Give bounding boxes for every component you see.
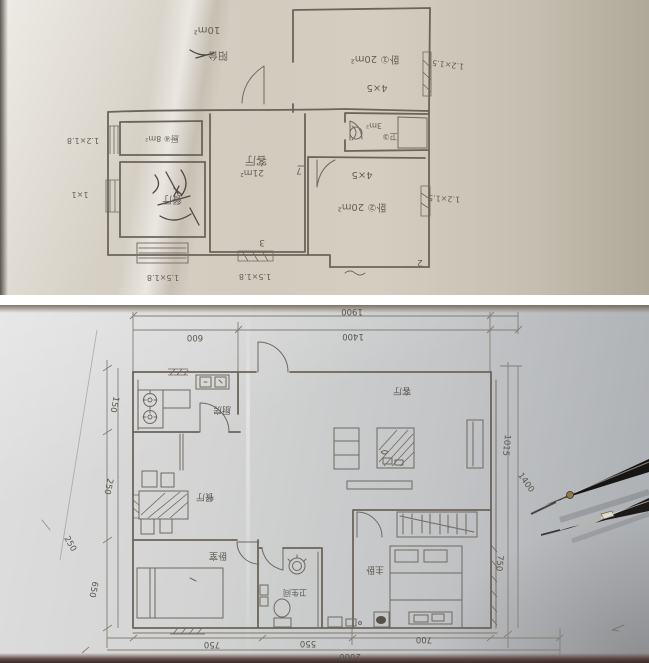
dim-left-3: 250 [61, 534, 78, 553]
dim-right-1: 1015 [500, 434, 512, 456]
dining-label: 餐厅 [162, 193, 182, 206]
dim-left-2: 250 [101, 477, 114, 495]
win-right-mid-label: 1.2×1.5 [428, 193, 461, 204]
dim-top-seg1: 600 [187, 332, 203, 342]
label-bathroom: 卫生间 [283, 588, 307, 598]
win-right-top-label: 1.2×1.5 [432, 58, 465, 71]
photo-drafted-plan: 1900 600 1400 750 550 700 2000 150 250 2… [0, 305, 649, 663]
room-labels: 厨房 客厅 餐厅 卧室 卫生间 主卧 [196, 385, 411, 598]
bed2-size-label: 4×5 [351, 169, 372, 180]
drafted-floorplan-svg: 1900 600 1400 750 550 700 2000 150 250 2… [0, 305, 649, 663]
dim-left-1: 150 [107, 395, 120, 413]
balcony-area-label: 10m² [194, 24, 220, 35]
bed2-label: 卧② 20m² [338, 201, 387, 214]
win-left-top-label: 1.2×1.8 [67, 136, 99, 145]
drafting-pens [531, 459, 649, 541]
step-num-label: 2 [417, 257, 423, 267]
label-master: 主卧 [366, 564, 384, 576]
dim-bottom-seg3: 700 [416, 634, 432, 644]
bath-label: 卫③ [382, 132, 397, 141]
plan-doors [200, 342, 382, 570]
stray-marks [42, 520, 624, 631]
dim-top-seg2: 1400 [342, 331, 364, 341]
photo-rough-sketch: 10m² 阳台 卧① 20m² 4×5 卫③ 3m² 客厅 21m² 3 7 卧… [0, 0, 649, 295]
label-kitchen: 厨房 [213, 404, 231, 416]
bedroom-furniture [137, 568, 223, 618]
kitchen-fixtures [138, 375, 229, 428]
living-furniture [334, 420, 483, 489]
win-left-mid-label: 1×1 [72, 190, 89, 199]
living-num-label: 3 [259, 237, 265, 247]
living-label: 客厅 [245, 154, 267, 168]
dim-top-total: 1900 [341, 306, 363, 316]
corner-num-label: 7 [296, 165, 302, 175]
two-floorplan-photos: 10m² 阳台 卧① 20m² 4×5 卫③ 3m² 客厅 21m² 3 7 卧… [0, 0, 649, 663]
dim-left-4: 650 [86, 580, 99, 598]
dim-bottom-total: 2000 [339, 651, 361, 661]
bed1-size-label: 4×5 [366, 82, 387, 93]
dimension-lines [60, 312, 563, 655]
living-area-label: 21m² [240, 167, 264, 177]
master-furniture [374, 512, 477, 628]
compass-pen-lower [541, 498, 649, 535]
bedside-lamp [376, 616, 386, 624]
bath-area-label: 3m² [366, 121, 382, 130]
dim-bottom-seg2: 550 [300, 638, 316, 648]
sketch-labels: 10m² 阳台 卧① 20m² 4×5 卫③ 3m² 客厅 21m² 3 7 卧… [67, 24, 465, 282]
label-dining: 餐厅 [196, 491, 214, 503]
bed1-label: 卧① 20m² [351, 53, 400, 66]
label-living: 客厅 [393, 385, 411, 397]
dining-set [139, 471, 188, 534]
compass-pen-upper [531, 459, 649, 514]
dim-right-2: 750 [493, 555, 504, 572]
balcony-name-label: 阳台 [208, 49, 228, 62]
win-bottom-mid-label: 1.5×1.8 [239, 272, 271, 281]
win-bottom-left-label: 1.5×1.8 [147, 273, 179, 282]
sketch-floorplan-svg: 10m² 阳台 卧① 20m² 4×5 卫③ 3m² 客厅 21m² 3 7 卧… [0, 0, 649, 295]
dim-bottom-seg1: 750 [204, 639, 220, 649]
bathroom-fixtures [260, 555, 362, 627]
label-bedroom: 卧室 [209, 550, 227, 562]
kitchen-label: 厨④ 8m² [145, 134, 179, 143]
